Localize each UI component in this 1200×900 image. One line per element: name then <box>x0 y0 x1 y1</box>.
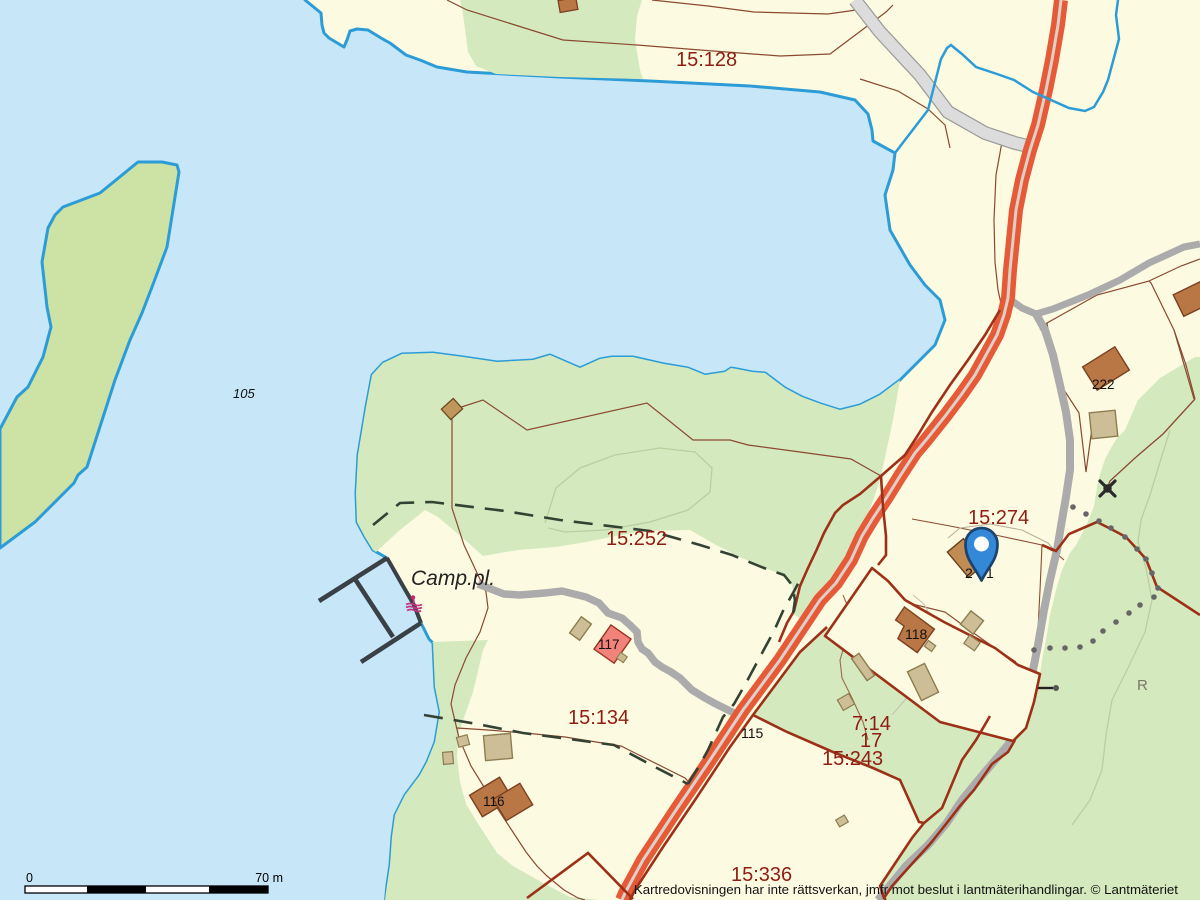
svg-text:15:252: 15:252 <box>606 528 667 550</box>
svg-text:15:134: 15:134 <box>568 707 629 729</box>
svg-text:70 m: 70 m <box>255 871 283 885</box>
svg-text:118: 118 <box>905 626 928 642</box>
svg-text:15:243: 15:243 <box>822 748 883 770</box>
svg-text:R: R <box>1137 677 1148 694</box>
svg-text:116: 116 <box>483 794 505 809</box>
svg-text:Camp.pl.: Camp.pl. <box>411 567 495 590</box>
svg-text:0: 0 <box>26 871 33 885</box>
svg-text:2: 2 <box>965 565 973 581</box>
svg-text:115: 115 <box>741 725 764 741</box>
svg-text:15:128: 15:128 <box>676 49 737 71</box>
svg-text:117: 117 <box>598 637 620 652</box>
svg-text:15:274: 15:274 <box>968 507 1029 529</box>
svg-text:222: 222 <box>1092 377 1115 392</box>
svg-text:Kartredovisningen har inte rät: Kartredovisningen har inte rättsverkan, … <box>634 882 1178 897</box>
svg-text:105: 105 <box>233 386 255 401</box>
